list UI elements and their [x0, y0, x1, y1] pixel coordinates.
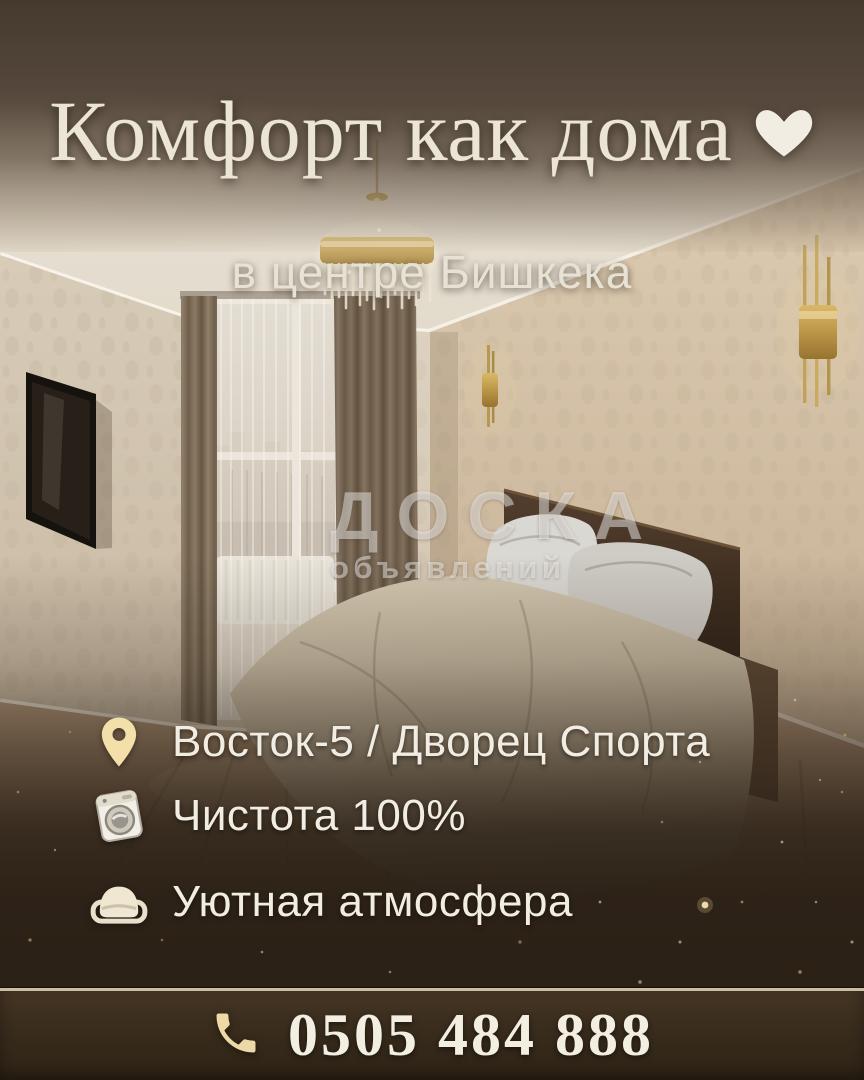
header: Комфорт как дома в центре Бишкека — [0, 0, 864, 299]
feature-location: Восток-5 / Дворец Спорта — [90, 714, 710, 770]
left-curtain — [181, 296, 217, 726]
feature-label: Восток-5 / Дворец Спорта — [172, 717, 710, 767]
feature-label: Уютная атмосфера — [172, 877, 573, 927]
phone-number: 0505 484 888 — [288, 1001, 654, 1070]
feature-cleanliness: Чистота 100% — [90, 788, 710, 844]
subtitle: в центре Бишкека — [0, 245, 864, 299]
wall-sconce-near — [464, 342, 516, 438]
phone-handset-icon — [210, 1007, 262, 1064]
feature-label: Чистота 100% — [172, 791, 466, 841]
phone-bar: 0505 484 888 — [0, 988, 864, 1080]
heart-icon — [753, 103, 815, 164]
feature-atmosphere: Уютная атмосфера — [90, 874, 710, 930]
apartment-ad-poster: Комфорт как дома в центре Бишкека ДОСКА … — [0, 0, 864, 1080]
location-pin-icon — [90, 715, 148, 769]
page-title: Комфорт как дома — [49, 88, 733, 176]
washing-machine-icon — [90, 789, 148, 843]
feature-list: Восток-5 / Дворец Спорта Чистота 100% — [90, 714, 710, 930]
bed-icon — [90, 879, 148, 925]
